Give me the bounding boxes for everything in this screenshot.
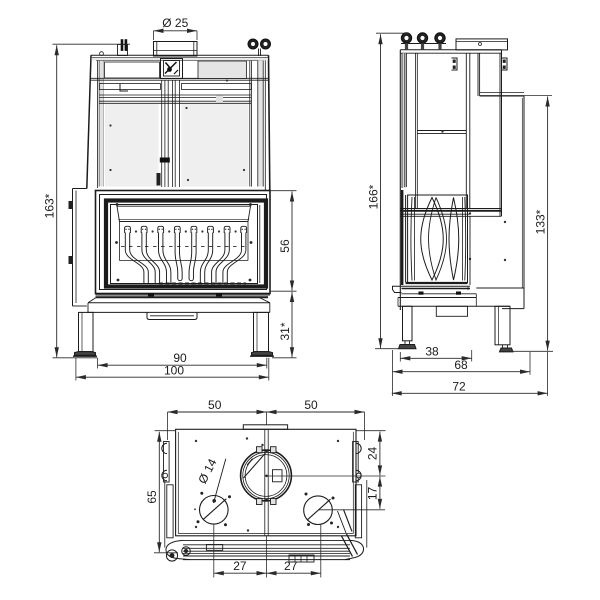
svg-text:17: 17 xyxy=(366,487,380,501)
svg-text:166*: 166* xyxy=(366,184,380,209)
svg-text:56: 56 xyxy=(278,239,292,253)
svg-text:24: 24 xyxy=(366,447,380,461)
svg-text:100: 100 xyxy=(164,363,184,377)
svg-text:72: 72 xyxy=(452,379,466,393)
svg-text:31*: 31* xyxy=(278,322,292,340)
svg-text:133*: 133* xyxy=(533,209,547,234)
svg-text:27: 27 xyxy=(233,559,247,573)
svg-text:50: 50 xyxy=(304,398,318,412)
svg-text:65: 65 xyxy=(145,490,159,504)
svg-text:163*: 163* xyxy=(43,193,57,218)
svg-text:68: 68 xyxy=(454,358,468,372)
svg-text:38: 38 xyxy=(425,344,439,358)
svg-text:27: 27 xyxy=(284,559,298,573)
svg-text:Ø 25: Ø 25 xyxy=(162,16,188,30)
svg-text:50: 50 xyxy=(208,398,222,412)
